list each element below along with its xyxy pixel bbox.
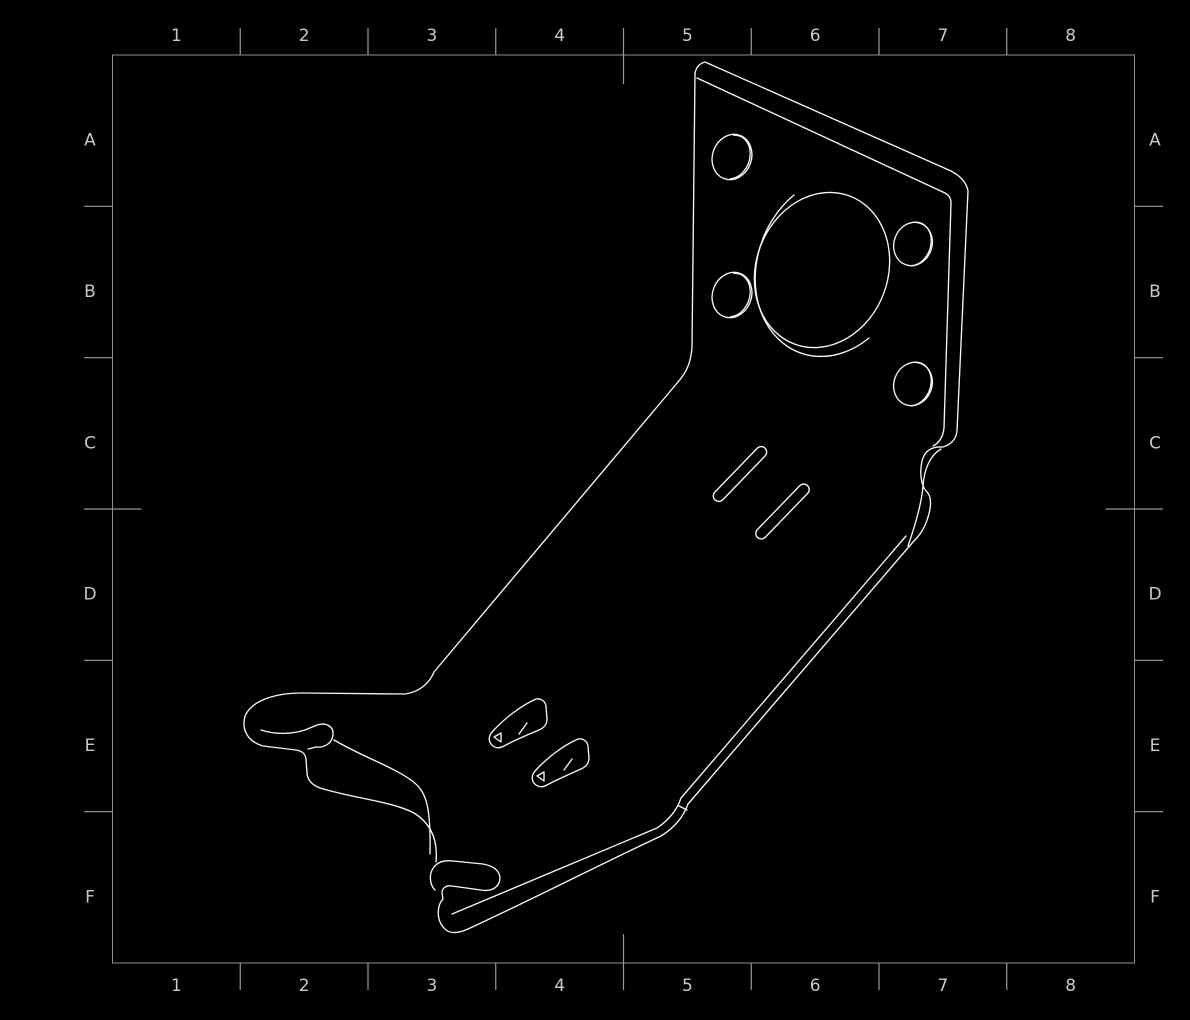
grid-col-label-bottom: 8	[1065, 976, 1076, 996]
grid-row-label-left: C	[84, 433, 96, 453]
grid-col-label-top: 6	[810, 26, 821, 46]
grid-col-label-top: 4	[554, 26, 565, 46]
sheet-background	[0, 0, 1190, 1020]
grid-row-label-right: F	[1150, 887, 1160, 907]
grid-col-label-top: 2	[299, 26, 310, 46]
grid-row-label-right: D	[1148, 585, 1161, 605]
grid-col-label-bottom: 6	[810, 976, 821, 996]
grid-col-label-top: 5	[682, 26, 693, 46]
technical-drawing-canvas: 1122334455667788AABBCCDDEEFF	[0, 0, 1190, 1020]
grid-col-label-bottom: 1	[171, 976, 182, 996]
grid-col-label-bottom: 3	[426, 976, 437, 996]
grid-row-label-left: F	[85, 887, 95, 907]
grid-row-label-left: D	[83, 585, 96, 605]
grid-row-label-right: A	[1149, 131, 1161, 151]
grid-col-label-top: 1	[171, 26, 182, 46]
grid-col-label-top: 8	[1065, 26, 1076, 46]
grid-col-label-top: 3	[426, 26, 437, 46]
grid-row-label-left: B	[84, 282, 96, 302]
grid-row-label-left: A	[84, 131, 96, 151]
grid-row-label-right: B	[1149, 282, 1161, 302]
grid-col-label-bottom: 7	[937, 976, 948, 996]
grid-col-label-bottom: 4	[554, 976, 565, 996]
grid-col-label-bottom: 5	[682, 976, 693, 996]
grid-col-label-top: 7	[937, 26, 948, 46]
grid-col-label-bottom: 2	[299, 976, 310, 996]
grid-row-label-right: C	[1149, 433, 1161, 453]
drawing-sheet: 1122334455667788AABBCCDDEEFF	[0, 0, 1190, 1020]
grid-row-label-right: E	[1150, 736, 1161, 756]
grid-row-label-left: E	[85, 736, 96, 756]
